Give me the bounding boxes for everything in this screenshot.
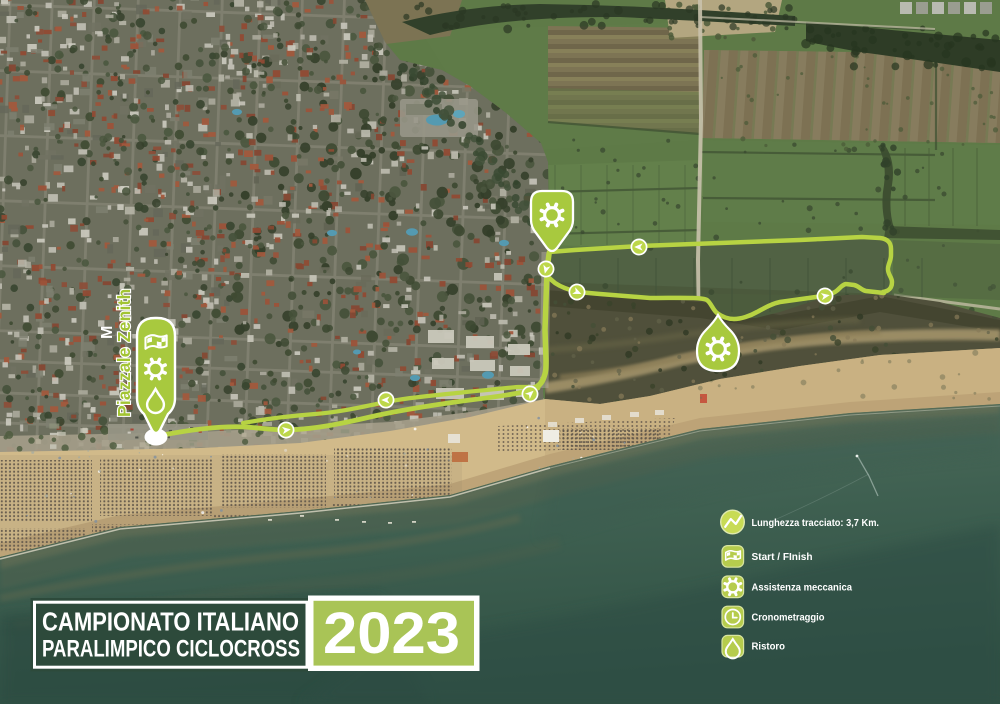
svg-text:Ristoro: Ristoro (752, 642, 786, 653)
svg-text:Start / FInish: Start / FInish (752, 552, 813, 563)
svg-text:Lunghezza tracciato: 3,7 Km.: Lunghezza tracciato: 3,7 Km. (752, 518, 880, 529)
svg-text:M: M (99, 326, 116, 339)
svg-text:Assistenza meccanica: Assistenza meccanica (752, 582, 853, 593)
svg-text:CAMPIONATO ITALIANO: CAMPIONATO ITALIANO (42, 609, 299, 637)
svg-text:Piazzale Zenith: Piazzale Zenith (114, 289, 134, 417)
svg-text:Cronometraggio: Cronometraggio (752, 613, 825, 624)
svg-text:2023: 2023 (323, 601, 460, 666)
svg-text:PARALIMPICO CICLOCROSS: PARALIMPICO CICLOCROSS (42, 636, 300, 663)
